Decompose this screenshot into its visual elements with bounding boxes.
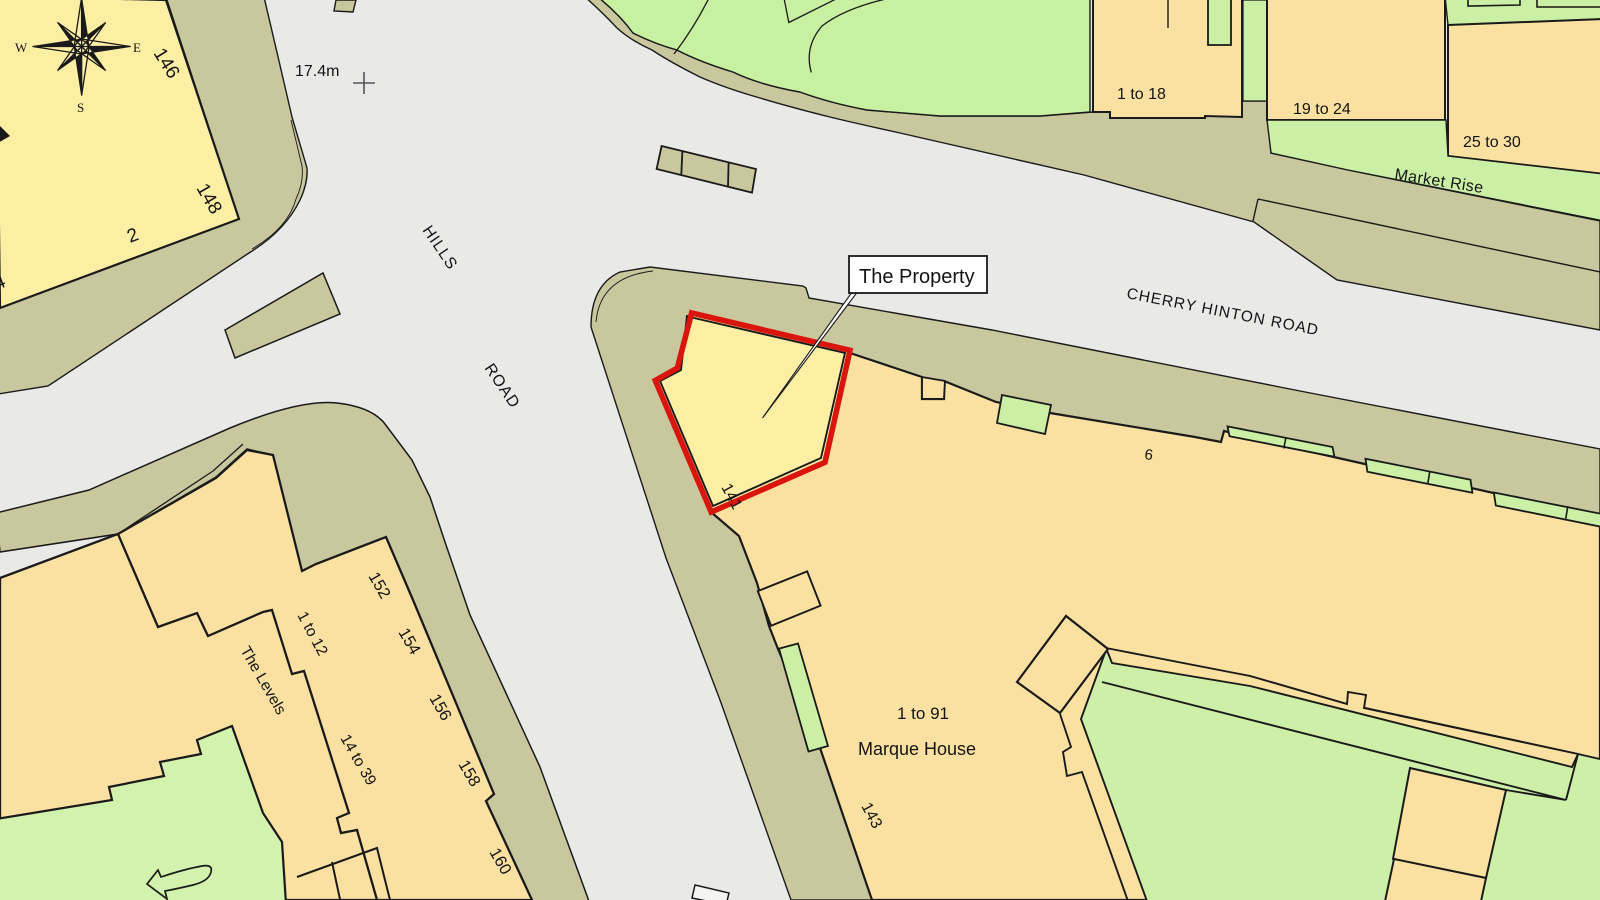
svg-text:E: E <box>133 40 141 55</box>
svg-text:Marque House: Marque House <box>858 739 976 759</box>
svg-text:1 to 91: 1 to 91 <box>897 704 949 723</box>
svg-text:W: W <box>15 40 28 55</box>
svg-text:25 to 30: 25 to 30 <box>1463 134 1521 151</box>
svg-text:19 to 24: 19 to 24 <box>1293 101 1351 118</box>
svg-text:1 to 18: 1 to 18 <box>1117 86 1166 103</box>
svg-text:17.4m: 17.4m <box>295 63 339 80</box>
svg-text:S: S <box>77 100 84 115</box>
svg-text:The Property: The Property <box>859 266 975 288</box>
